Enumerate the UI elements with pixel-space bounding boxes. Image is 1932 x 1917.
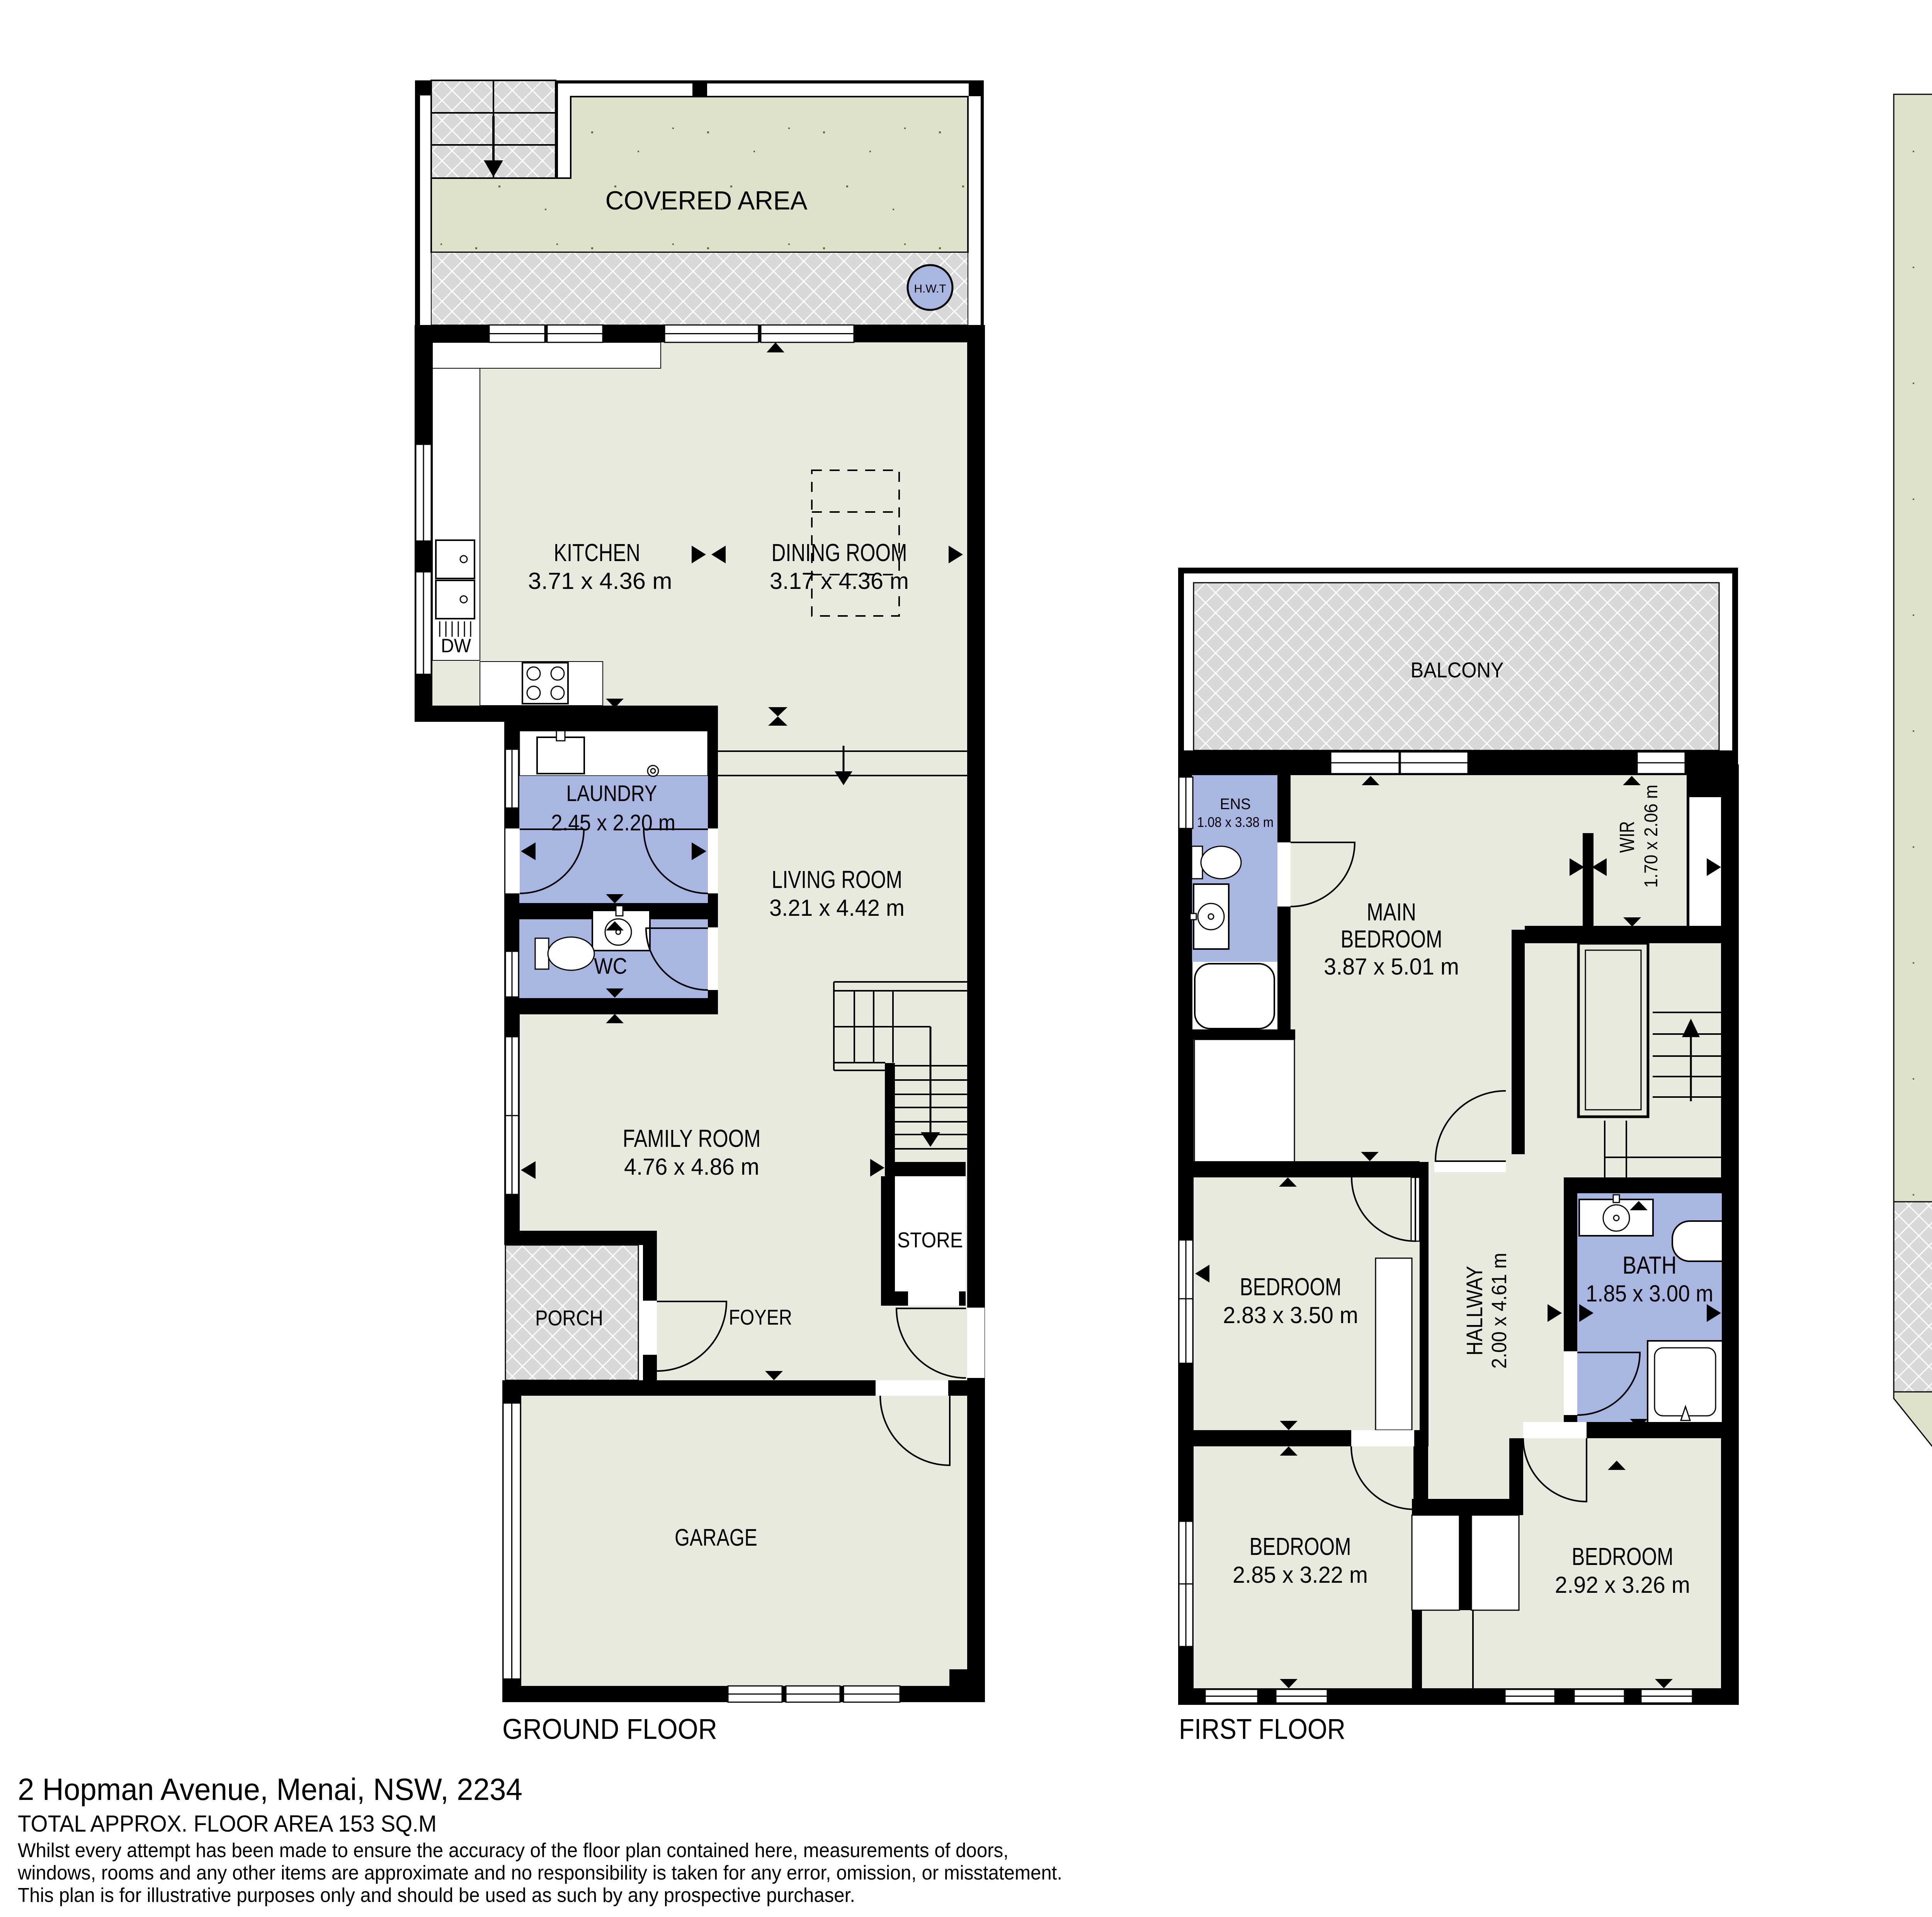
svg-text:COVERED AREA: COVERED AREA [605, 186, 808, 215]
svg-text:TOTAL APPROX. FLOOR AREA 153 S: TOTAL APPROX. FLOOR AREA 153 SQ.M [18, 1811, 437, 1837]
svg-text:This plan is for illustrative: This plan is for illustrative purposes o… [18, 1884, 855, 1907]
svg-text:3.71 x 4.36 m: 3.71 x 4.36 m [528, 568, 672, 594]
svg-text:BEDROOM: BEDROOM [1240, 1273, 1342, 1301]
svg-text:DINING ROOM: DINING ROOM [772, 539, 907, 566]
svg-text:MAIN: MAIN [1367, 898, 1416, 926]
svg-text:1.85 x 3.00 m: 1.85 x 3.00 m [1586, 1281, 1713, 1306]
svg-text:2.45 x 2.20 m: 2.45 x 2.20 m [551, 810, 675, 835]
svg-text:2.92 x 3.26 m: 2.92 x 3.26 m [1555, 1572, 1690, 1598]
svg-text:FAMILY ROOM: FAMILY ROOM [623, 1124, 761, 1152]
svg-text:3.21 x 4.42 m: 3.21 x 4.42 m [769, 895, 905, 921]
svg-text:4.76 x 4.86 m: 4.76 x 4.86 m [624, 1154, 759, 1180]
svg-text:WIR: WIR [1616, 821, 1639, 853]
svg-text:LIVING ROOM: LIVING ROOM [772, 866, 902, 893]
svg-text:GROUND FLOOR: GROUND FLOOR [502, 1713, 717, 1745]
svg-text:BEDROOM: BEDROOM [1250, 1533, 1351, 1560]
svg-text:BEDROOM: BEDROOM [1341, 925, 1442, 953]
svg-text:HALLWAY: HALLWAY [1462, 1266, 1487, 1356]
svg-text:Whilst every attempt has been: Whilst every attempt has been made to en… [18, 1839, 1009, 1862]
svg-text:1.70 x 2.06 m: 1.70 x 2.06 m [1641, 785, 1662, 888]
svg-text:windows, rooms and any other i: windows, rooms and any other items are a… [17, 1862, 1062, 1884]
svg-text:2.85 x 3.22 m: 2.85 x 3.22 m [1233, 1562, 1368, 1588]
svg-text:3.87 x 5.01 m: 3.87 x 5.01 m [1324, 954, 1459, 980]
svg-text:BALCONY: BALCONY [1411, 658, 1504, 682]
svg-text:1.08 x 3.38 m: 1.08 x 3.38 m [1197, 814, 1274, 830]
svg-text:3.17 x 4.36 m: 3.17 x 4.36 m [770, 568, 909, 594]
svg-text:2 Hopman Avenue, Menai, NSW, 2: 2 Hopman Avenue, Menai, NSW, 2234 [18, 1772, 522, 1806]
svg-text:GARAGE: GARAGE [675, 1524, 757, 1551]
svg-text:DW: DW [441, 635, 471, 657]
svg-text:PORCH: PORCH [535, 1306, 603, 1330]
svg-text:FIRST FLOOR: FIRST FLOOR [1179, 1713, 1345, 1745]
svg-text:KITCHEN: KITCHEN [554, 539, 640, 566]
svg-text:H.W.T: H.W.T [914, 282, 946, 295]
svg-text:FOYER: FOYER [729, 1305, 792, 1329]
svg-text:WC: WC [594, 954, 627, 979]
svg-text:ENS: ENS [1220, 796, 1251, 813]
svg-text:LAUNDRY: LAUNDRY [566, 781, 657, 806]
svg-text:2.83 x 3.50 m: 2.83 x 3.50 m [1223, 1302, 1358, 1328]
svg-text:BEDROOM: BEDROOM [1572, 1543, 1673, 1570]
svg-text:STORE: STORE [897, 1228, 963, 1252]
svg-text:2.00 x 4.61 m: 2.00 x 4.61 m [1488, 1253, 1511, 1369]
svg-text:BATH: BATH [1622, 1251, 1677, 1279]
